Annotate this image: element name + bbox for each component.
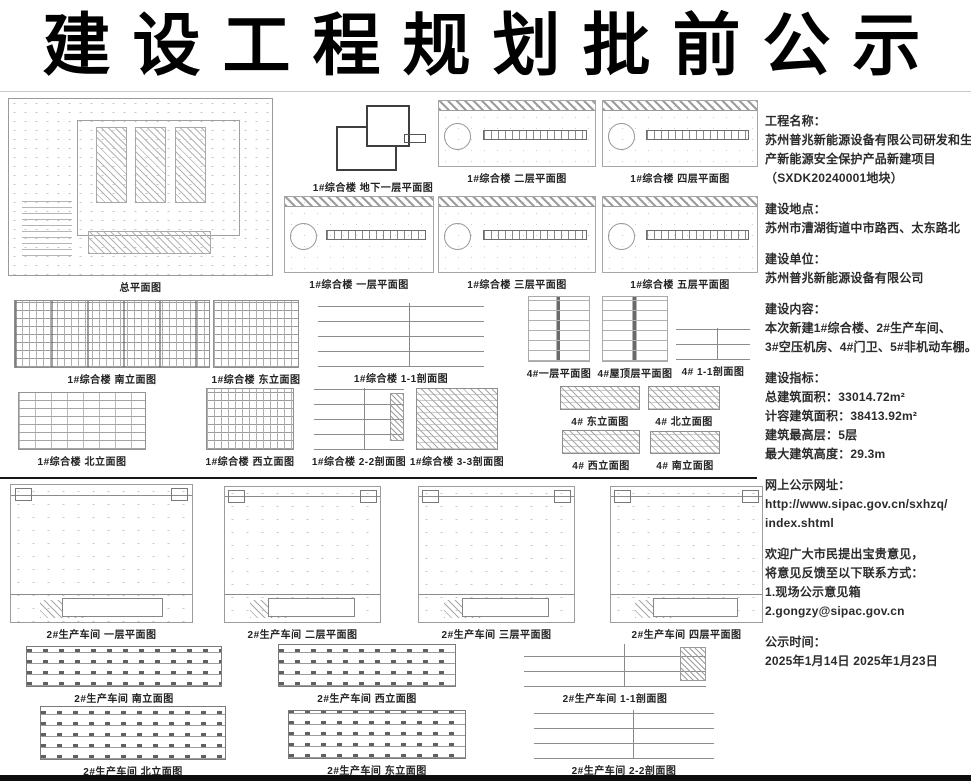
sketch-detail bbox=[439, 101, 595, 111]
sketch-detail bbox=[390, 393, 404, 441]
info-line: 建筑最高层：5层 bbox=[765, 426, 967, 445]
info-line: 本次新建1#综合楼、2#生产车间、 bbox=[765, 319, 967, 338]
info-heading: 建设内容： bbox=[765, 300, 967, 319]
legend-text-block bbox=[22, 196, 72, 256]
info-line: 产新能源安全保护产品新建项目 bbox=[765, 150, 967, 169]
sketch-detail bbox=[225, 594, 380, 595]
publicity-url: index.shtml bbox=[765, 514, 967, 533]
elevation-sketch bbox=[18, 392, 146, 450]
sketch-detail bbox=[409, 303, 410, 367]
info-section-website: 网上公示网址： http://www.sipac.gov.cn/sxhzq/ i… bbox=[765, 476, 967, 533]
info-section-project-name: 工程名称： 苏州普兆新能源设备有限公司研发和生 产新能源安全保护产品新建项目 （… bbox=[765, 112, 967, 188]
section-sketch bbox=[416, 388, 498, 450]
sketch-detail bbox=[285, 197, 433, 207]
site-plan-sketch bbox=[8, 98, 273, 276]
sketch-detail bbox=[462, 598, 549, 616]
info-heading: 公示时间： bbox=[765, 633, 967, 652]
drawing-label: 4#一层平面图 bbox=[527, 365, 592, 380]
sketch-detail bbox=[88, 231, 211, 254]
drawing-4-south-elevation: 4# 南立面图 bbox=[650, 431, 720, 472]
drawing-1-south-elevation: 1#综合楼 南立面图 bbox=[14, 300, 210, 386]
drawing-1-floor2-plan: 1#综合楼 二层平面图 bbox=[438, 100, 596, 185]
info-heading: 建设单位： bbox=[765, 250, 967, 269]
sketch-detail bbox=[554, 490, 571, 503]
drawing-4-roof-plan: 4#屋顶层平面图 bbox=[602, 296, 668, 380]
info-line: （SXDK20240001地块） bbox=[765, 169, 967, 188]
sketch-detail bbox=[680, 647, 706, 681]
drawing-label: 2#生产车间 三层平面图 bbox=[442, 626, 552, 641]
drawing-label: 2#生产车间 一层平面图 bbox=[47, 626, 157, 641]
sketch-detail bbox=[15, 488, 32, 501]
sketch-detail bbox=[279, 645, 455, 686]
small-elevation-sketch bbox=[650, 431, 720, 454]
drawing-1-west-elevation: 1#综合楼 西立面图 bbox=[206, 388, 294, 468]
elevation-sketch bbox=[213, 300, 299, 368]
drawing-4-east-elevation: 4# 东立面图 bbox=[560, 386, 640, 428]
info-panel: 工程名称： 苏州普兆新能源设备有限公司研发和生 产新能源安全保护产品新建项目 （… bbox=[765, 112, 967, 683]
drawing-label: 1#综合楼 北立面图 bbox=[38, 453, 127, 468]
publicity-dates: 2025年1月14日 2025年1月23日 bbox=[765, 652, 967, 671]
drawing-label: 4# 东立面图 bbox=[571, 413, 628, 428]
drawing-label: 1#综合楼 3-3剖面图 bbox=[410, 453, 504, 468]
floor-plan-sketch bbox=[438, 100, 596, 167]
sketch-detail bbox=[646, 130, 749, 140]
info-heading: 欢迎广大市民提出宝贵意见， bbox=[765, 545, 967, 564]
floor-plan-sketch bbox=[284, 196, 434, 273]
info-heading: 建设地点： bbox=[765, 200, 967, 219]
drawing-label: 1#综合楼 五层平面图 bbox=[630, 276, 729, 291]
section-sketch bbox=[318, 303, 484, 367]
sketch-detail bbox=[289, 711, 465, 758]
sketch-detail bbox=[633, 710, 634, 759]
workshop-plan-sketch bbox=[10, 484, 193, 623]
sketch-detail bbox=[360, 490, 377, 503]
sketch-detail bbox=[483, 130, 588, 140]
sketch-detail bbox=[364, 388, 365, 450]
drawing-1-section-2-2: 1#综合楼 2-2剖面图 bbox=[314, 388, 404, 468]
sketch-detail bbox=[422, 490, 439, 503]
sketch-detail bbox=[603, 101, 757, 111]
drawing-2-north-elevation: 2#生产车间 北立面图 bbox=[40, 706, 226, 778]
sketch-detail bbox=[614, 490, 631, 503]
basement-plan-sketch bbox=[318, 104, 428, 176]
floor-plan-sketch bbox=[438, 196, 596, 273]
drawing-label: 4#屋顶层平面图 bbox=[597, 365, 672, 380]
sketch-detail bbox=[646, 230, 749, 240]
drawing-label: 4# 1-1剖面图 bbox=[682, 363, 745, 378]
sketch-detail bbox=[326, 230, 425, 240]
sketch-detail bbox=[608, 123, 635, 150]
drawing-4-west-elevation: 4# 西立面图 bbox=[562, 430, 640, 472]
drawing-2-floor3-plan: 2#生产车间 三层平面图 bbox=[418, 486, 575, 641]
drawing-label: 1#综合楼 三层平面图 bbox=[467, 276, 566, 291]
sketch-detail bbox=[96, 127, 127, 203]
elevation-sketch bbox=[40, 706, 226, 760]
drawing-label: 1#综合楼 一层平面图 bbox=[309, 276, 408, 291]
floor-plan-sketch bbox=[602, 100, 758, 167]
section-sketch bbox=[524, 644, 706, 687]
sketch-detail bbox=[27, 647, 221, 686]
drawing-2-floor1-plan: 2#生产车间 一层平面图 bbox=[10, 484, 193, 641]
info-line: 苏州普兆新能源设备有限公司研发和生 bbox=[765, 131, 967, 150]
info-section-period: 公示时间： 2025年1月14日 2025年1月23日 bbox=[765, 633, 967, 671]
sketch-detail bbox=[404, 134, 426, 143]
sketch-detail bbox=[11, 594, 192, 595]
sketch-detail bbox=[419, 496, 574, 497]
info-line: 总建筑面积：33014.72m² bbox=[765, 388, 967, 407]
drawing-1-floor3-plan: 1#综合楼 三层平面图 bbox=[438, 196, 596, 291]
drawing-label: 2#生产车间 南立面图 bbox=[74, 690, 173, 705]
sketch-detail bbox=[742, 490, 759, 503]
sketch-detail bbox=[15, 301, 209, 367]
bottom-border bbox=[0, 775, 971, 781]
elevation-sketch bbox=[206, 388, 294, 450]
sketch-detail bbox=[608, 223, 635, 250]
sketch-detail bbox=[439, 197, 595, 207]
drawing-4-section-1-1: 4# 1-1剖面图 bbox=[676, 296, 750, 378]
poster-title: 建设工程规划批前公示 bbox=[14, 0, 971, 88]
drawing-label: 4# 南立面图 bbox=[656, 457, 713, 472]
sketch-detail bbox=[62, 598, 163, 616]
drawing-1-basement-plan: 1#综合楼 地下一层平面图 bbox=[318, 104, 428, 194]
drawing-label: 1#综合楼 1-1剖面图 bbox=[354, 370, 448, 385]
drawing-1-section-1-1: 1#综合楼 1-1剖面图 bbox=[318, 303, 484, 385]
floor-plan-sketch bbox=[602, 196, 758, 273]
sketch-detail bbox=[603, 197, 757, 207]
drawing-2-floor2-plan: 2#生产车间 二层平面图 bbox=[224, 486, 381, 641]
drawing-label: 1#综合楼 2-2剖面图 bbox=[312, 453, 406, 468]
section-sketch bbox=[314, 388, 404, 450]
drawing-label: 4# 西立面图 bbox=[572, 457, 629, 472]
elevation-sketch bbox=[278, 644, 456, 687]
workshop-plan-sketch bbox=[418, 486, 575, 623]
drawing-1-floor4-plan: 1#综合楼 四层平面图 bbox=[602, 100, 758, 185]
info-line: 苏州市漕湖街道中市路西、太东路北 bbox=[765, 219, 967, 238]
sketch-detail bbox=[228, 490, 245, 503]
small-elevation-sketch bbox=[648, 386, 720, 410]
publicity-url: http://www.sipac.gov.cn/sxhzq/ bbox=[765, 495, 967, 514]
drawing-2-south-elevation: 2#生产车间 南立面图 bbox=[26, 646, 222, 705]
sketch-detail bbox=[41, 707, 225, 759]
info-line: 计容建筑面积：38413.92m² bbox=[765, 407, 967, 426]
info-line: 最大建筑高度：29.3m bbox=[765, 445, 967, 464]
drawing-label: 2#生产车间 二层平面图 bbox=[248, 626, 358, 641]
sketch-detail bbox=[653, 598, 738, 616]
sketch-detail bbox=[11, 495, 192, 496]
info-section-location: 建设地点： 苏州市漕湖街道中市路西、太东路北 bbox=[765, 200, 967, 238]
drawing-label: 1#综合楼 东立面图 bbox=[212, 371, 301, 386]
drawing-label: 2#生产车间 西立面图 bbox=[317, 690, 416, 705]
sketch-detail bbox=[611, 594, 762, 595]
drawing-2-floor4-plan: 2#生产车间 四层平面图 bbox=[610, 486, 763, 641]
info-section-content: 建设内容： 本次新建1#综合楼、2#生产车间、 3#空压机房、4#门卫、5#非机… bbox=[765, 300, 967, 357]
info-section-indicators: 建设指标： 总建筑面积：33014.72m² 计容建筑面积：38413.92m²… bbox=[765, 369, 967, 464]
sketch-detail bbox=[624, 644, 625, 687]
drawing-label: 总平面图 bbox=[120, 279, 162, 294]
info-line: 1.现场公示意见箱 bbox=[765, 583, 967, 602]
small-plan-sketch bbox=[528, 296, 590, 362]
info-heading: 网上公示网址： bbox=[765, 476, 967, 495]
drawing-4-north-elevation: 4# 北立面图 bbox=[648, 386, 720, 428]
drawing-label: 2#生产车间 1-1剖面图 bbox=[563, 690, 668, 705]
sketch-detail bbox=[175, 127, 206, 203]
drawing-1-floor1-plan: 1#综合楼 一层平面图 bbox=[284, 196, 434, 291]
drawing-label: 1#综合楼 西立面图 bbox=[206, 453, 295, 468]
notice-poster: 建设工程规划批前公示 总平面图 1#综合楼 地下一层平面图 bbox=[0, 0, 971, 781]
sketch-detail bbox=[290, 223, 317, 250]
drawing-label: 1#综合楼 二层平面图 bbox=[467, 170, 566, 185]
drawing-label: 1#综合楼 四层平面图 bbox=[630, 170, 729, 185]
sketch-detail bbox=[419, 594, 574, 595]
workshop-plan-sketch bbox=[610, 486, 763, 623]
small-elevation-sketch bbox=[562, 430, 640, 454]
drawing-1-north-elevation: 1#综合楼 北立面图 bbox=[18, 392, 146, 468]
small-elevation-sketch bbox=[560, 386, 640, 410]
sketch-detail bbox=[717, 328, 718, 360]
elevation-sketch bbox=[288, 710, 466, 759]
info-line: 3#空压机房、4#门卫、5#非机动车棚。 bbox=[765, 338, 967, 357]
drawing-2-west-elevation: 2#生产车间 西立面图 bbox=[278, 644, 456, 705]
small-plan-sketch bbox=[602, 296, 668, 362]
sketch-detail bbox=[268, 598, 355, 616]
sketch-detail bbox=[483, 230, 588, 240]
info-line: 苏州普兆新能源设备有限公司 bbox=[765, 269, 967, 288]
drawing-label: 4# 北立面图 bbox=[655, 413, 712, 428]
sketch-detail bbox=[444, 223, 471, 250]
section-sketch bbox=[534, 710, 714, 759]
section-sketch bbox=[676, 328, 750, 360]
info-line: 将意见反馈至以下联系方式： bbox=[765, 564, 967, 583]
drawing-2-east-elevation: 2#生产车间 东立面图 bbox=[288, 710, 466, 777]
info-section-owner: 建设单位： 苏州普兆新能源设备有限公司 bbox=[765, 250, 967, 288]
sketch-detail bbox=[135, 127, 166, 203]
info-section-feedback: 欢迎广大市民提出宝贵意见， 将意见反馈至以下联系方式： 1.现场公示意见箱 2.… bbox=[765, 545, 967, 621]
drawing-site-plan: 总平面图 bbox=[8, 98, 273, 294]
drawing-2-section-2-2: 2#生产车间 2-2剖面图 bbox=[534, 710, 714, 777]
drawing-label: 1#综合楼 地下一层平面图 bbox=[313, 179, 433, 194]
sketch-detail bbox=[225, 496, 380, 497]
drawing-4-floor1-plan: 4#一层平面图 bbox=[528, 296, 590, 380]
workshop-plan-sketch bbox=[224, 486, 381, 623]
drawing-1-section-3-3: 1#综合楼 3-3剖面图 bbox=[416, 388, 498, 468]
drawing-label: 2#生产车间 四层平面图 bbox=[632, 626, 742, 641]
elevation-sketch bbox=[26, 646, 222, 687]
drawing-1-east-elevation: 1#综合楼 东立面图 bbox=[213, 300, 299, 386]
sketch-detail bbox=[444, 123, 471, 150]
sketch-detail bbox=[611, 496, 762, 497]
sketch-detail bbox=[171, 488, 188, 501]
drawing-1-floor5-plan: 1#综合楼 五层平面图 bbox=[602, 196, 758, 291]
elevation-sketch bbox=[14, 300, 210, 368]
info-heading: 建设指标： bbox=[765, 369, 967, 388]
drawing-label: 1#综合楼 南立面图 bbox=[68, 371, 157, 386]
section-divider bbox=[0, 477, 757, 479]
title-divider bbox=[0, 91, 971, 92]
info-heading: 工程名称： bbox=[765, 112, 967, 131]
drawing-2-section-1-1: 2#生产车间 1-1剖面图 bbox=[524, 644, 706, 705]
feedback-email: 2.gongzy@sipac.gov.cn bbox=[765, 602, 967, 621]
